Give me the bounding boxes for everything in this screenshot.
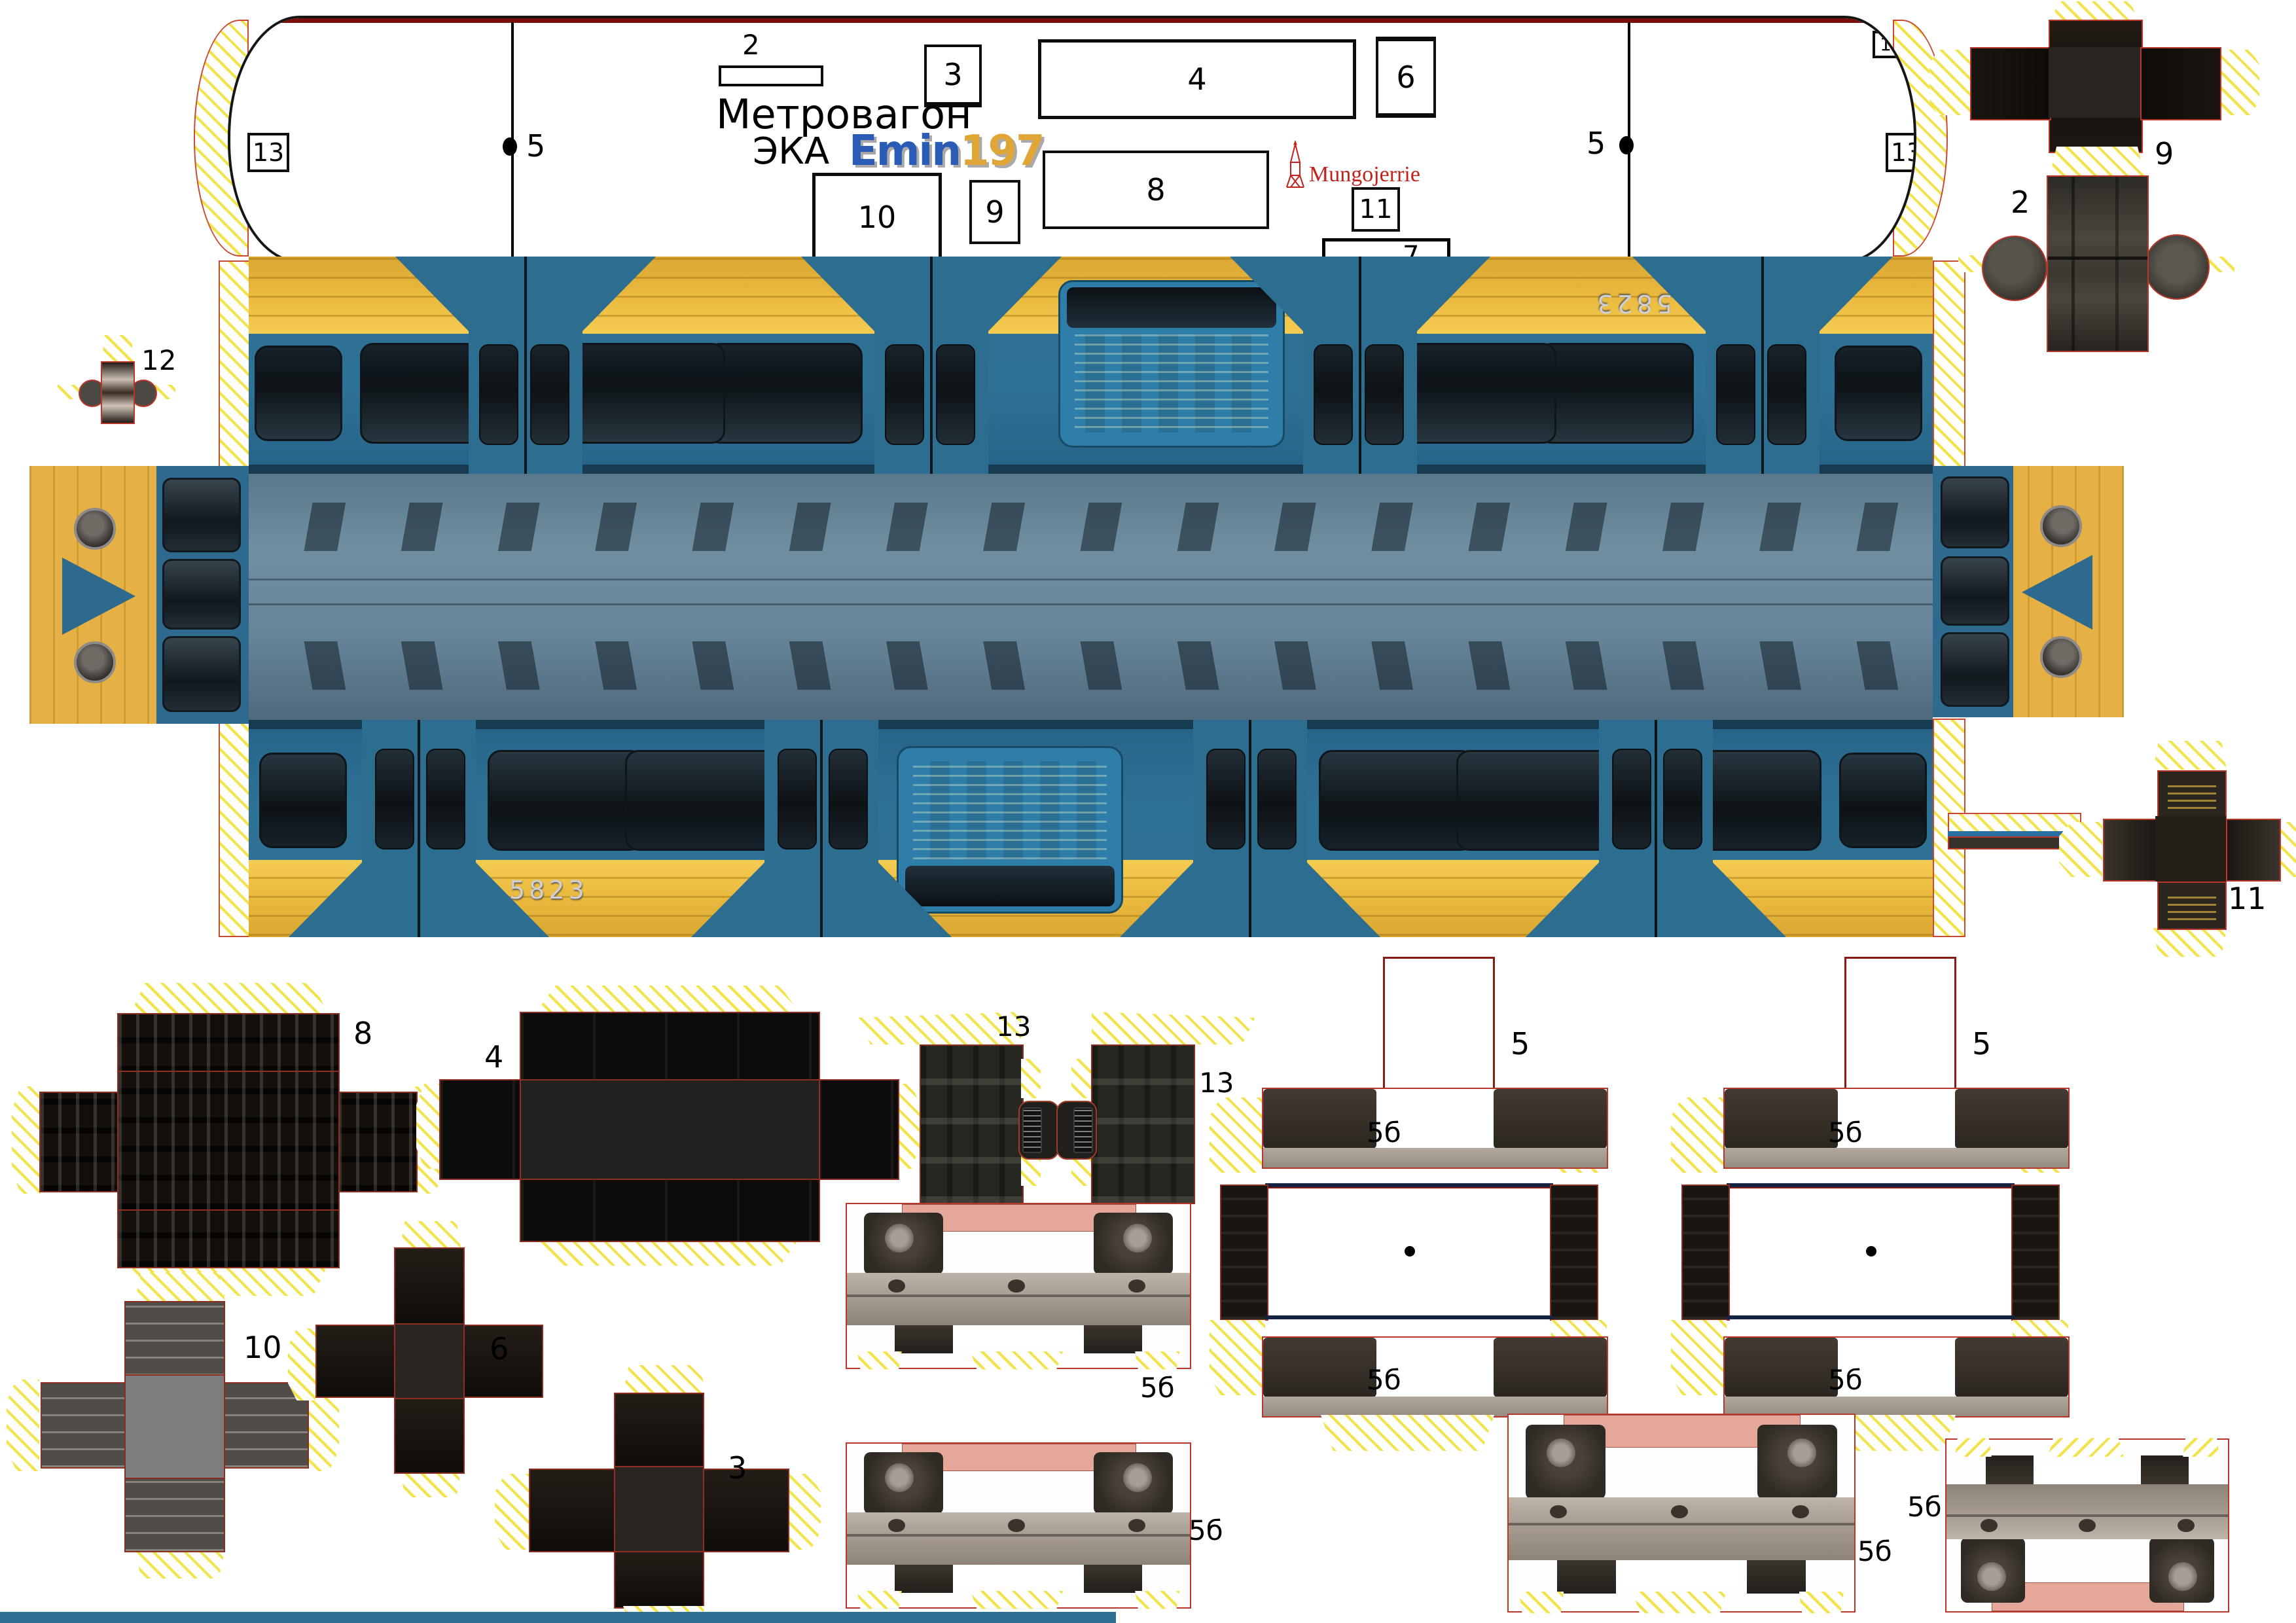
part9-left-flap — [1970, 47, 2051, 120]
part5-glue-tab — [1210, 1320, 1265, 1395]
floor-seam — [249, 603, 1933, 605]
part5-top-tab — [1383, 957, 1495, 1095]
part2-end-disc-right — [2144, 234, 2210, 300]
part4-glue-tab — [897, 1084, 920, 1169]
part3-glue-tab — [787, 1474, 821, 1550]
bogie-beam — [1725, 1148, 2068, 1168]
end-window — [255, 346, 342, 441]
part5-glue-tab — [1210, 1097, 1265, 1173]
part9-right-flap — [2140, 47, 2221, 120]
part-label-5b: 5б — [1189, 1517, 1223, 1544]
door-gap — [418, 720, 420, 937]
headlight — [74, 508, 116, 550]
frame-hole — [888, 1279, 905, 1293]
part11-glue-tab — [2153, 741, 2227, 770]
car-number: 5823 — [1593, 289, 1672, 318]
part-label-5b: 5б — [1857, 1538, 1892, 1565]
part8-bottom-flap — [117, 1208, 340, 1268]
door-window — [530, 344, 569, 445]
roof-piece: 5 5 2 3 4 6 Метровагон ЭКА Emin197 Mungo… — [228, 16, 1916, 263]
sheet-title-line2: ЭКА — [753, 134, 826, 170]
car-body-unfold: 5823 5823 — [249, 257, 1933, 937]
door-window — [1365, 344, 1404, 445]
brake-rod — [1946, 1514, 2228, 1517]
route-map-glass — [905, 866, 1115, 906]
door-gap — [524, 257, 527, 474]
door-window — [1206, 749, 1246, 849]
part5-glue-tab — [1671, 1097, 1727, 1173]
part8-left-flap — [39, 1092, 120, 1192]
part10-center — [124, 1374, 225, 1479]
part4-glue-tab — [537, 1240, 798, 1266]
glue-tab — [1135, 1591, 1179, 1609]
axle-cap — [2168, 1562, 2197, 1591]
side-window — [625, 750, 781, 851]
part7-blue-line — [1948, 831, 2079, 836]
end-window — [259, 753, 347, 848]
logo-text: Emin — [849, 127, 960, 175]
pivot-dot — [1405, 1246, 1415, 1257]
part5-glue-tab — [1321, 1415, 1494, 1451]
part-label-3: 3 — [943, 60, 962, 90]
door — [362, 720, 476, 937]
car-front-face-left — [29, 466, 249, 724]
part5-bogie-strip-bottom — [1262, 1336, 1608, 1418]
cutout-6: 6 — [1376, 37, 1436, 118]
door — [469, 257, 583, 474]
part5-side-panel — [1681, 1185, 1730, 1321]
route-map-glass — [1067, 287, 1276, 328]
part9-glue-tab — [1929, 50, 1970, 115]
part-label-2: 2 — [742, 31, 760, 59]
part-label-5b: 5б — [1367, 1119, 1401, 1147]
part5-side-panel — [1550, 1185, 1598, 1321]
cut-notch — [1616, 1560, 1748, 1586]
part-label-9: 9 — [985, 197, 1004, 227]
lower-spring-cluster — [2141, 1455, 2189, 1485]
part6-glue-tab — [401, 1471, 461, 1497]
bogie-beam — [1263, 1148, 1607, 1168]
part-label-5b: 5б — [1828, 1366, 1863, 1394]
part-label-11: 11 — [1359, 196, 1393, 223]
headlight — [2040, 505, 2082, 547]
body-glue-tab-left-lower — [219, 719, 251, 937]
part3-top-flap — [614, 1393, 704, 1469]
end-window — [1835, 346, 1922, 441]
part4-bottom-flap — [520, 1177, 820, 1242]
part10-bottom-flap — [124, 1476, 225, 1552]
door-gap — [1249, 720, 1251, 937]
part2-glue-tab — [2207, 257, 2234, 272]
door-gap — [820, 720, 823, 937]
part-label-5b: 5б — [1367, 1366, 1401, 1394]
part6-center — [394, 1323, 465, 1399]
door — [764, 720, 878, 937]
door — [1303, 257, 1417, 474]
part5-side-panel — [2011, 1185, 2060, 1321]
part8-glue-tab — [12, 1086, 41, 1194]
part9-glue-tab — [2052, 1, 2137, 21]
part-label-4: 4 — [484, 1042, 503, 1072]
side-window — [488, 750, 643, 851]
side-window — [1401, 343, 1556, 444]
lower-spring-cluster — [895, 1565, 953, 1593]
fold-line — [1727, 1315, 2015, 1319]
vent-row — [249, 641, 1933, 690]
part4-left-flap — [439, 1079, 522, 1180]
part4-glue-tab — [416, 1084, 439, 1169]
part-label-8: 8 — [1146, 175, 1165, 205]
part6-glue-tab — [401, 1221, 461, 1247]
front-window — [162, 478, 241, 552]
end-window — [1839, 753, 1927, 848]
part12-glue-tab — [154, 385, 175, 399]
part-label-10: 10 — [858, 202, 897, 232]
door-gap — [1655, 720, 1657, 937]
part2-glue-tab — [1958, 255, 1984, 272]
part10-glue-tab — [7, 1380, 39, 1471]
bogie-cluster — [1725, 1089, 1838, 1149]
glue-tab — [857, 1591, 902, 1609]
part-label-5: 5 — [1511, 1029, 1530, 1059]
floor-seam — [249, 579, 1933, 580]
door-window — [426, 749, 465, 849]
glue-tab — [2183, 1438, 2219, 1457]
door-window — [829, 749, 868, 849]
route-map-panel — [897, 746, 1123, 914]
part13-glue-tab — [1071, 1059, 1091, 1098]
part-label-5: 5 — [526, 131, 545, 161]
part13-glue-tab — [1021, 1059, 1041, 1098]
part9-center — [2049, 47, 2140, 118]
front-window — [1941, 632, 2009, 707]
door-gap — [930, 257, 933, 474]
mark-box-12: 12 — [1873, 31, 1910, 58]
bogie-sideframe — [846, 1203, 1191, 1369]
axle-cap — [1977, 1562, 2006, 1591]
body-glue-tab-left-upper — [219, 260, 251, 471]
lower-spring-cluster — [1084, 1565, 1142, 1593]
part-label-5: 5 — [1972, 1029, 1991, 1059]
mark-box-13-right: 13 — [1886, 133, 1916, 172]
part2-pipe — [2072, 177, 2075, 351]
side-window — [707, 343, 863, 444]
door-gap — [1359, 257, 1361, 474]
axle-cap — [1787, 1438, 1816, 1467]
car-floor-strip — [249, 474, 1933, 720]
door-window — [479, 344, 518, 445]
part6-top-flap — [394, 1247, 465, 1326]
cutout-11: 11 — [1352, 187, 1400, 232]
frame-hole — [1792, 1505, 1809, 1518]
brake-rod — [1509, 1523, 1854, 1525]
pivot-dot — [1866, 1246, 1876, 1257]
bogie-sideframe — [846, 1442, 1191, 1609]
glue-tab — [1955, 1438, 1992, 1457]
part3-center — [614, 1466, 704, 1552]
headlight — [2040, 636, 2082, 678]
cut-notch — [953, 1325, 1083, 1347]
part2-seam — [2048, 257, 2147, 260]
part5-left: 5 5б 5б — [1210, 957, 1605, 1421]
glue-tab — [971, 1591, 1063, 1609]
part8-center — [117, 1071, 340, 1211]
part-label-2: 2 — [2011, 187, 2030, 217]
part3-bottom-flap — [614, 1550, 704, 1609]
frame-hole — [888, 1519, 905, 1532]
part11-top-flap — [2157, 770, 2227, 819]
glue-tab — [971, 1351, 1063, 1370]
door-window — [375, 749, 414, 849]
part3-glue-tab — [623, 1365, 706, 1393]
part-label-10: 10 — [243, 1332, 282, 1363]
lower-spring-cluster — [895, 1325, 953, 1353]
door-window — [1716, 344, 1755, 445]
part-label-6: 6 — [1396, 62, 1415, 92]
lower-spring-cluster — [1986, 1455, 2034, 1485]
cutout-10: 10 — [812, 173, 942, 262]
frame-hole — [1128, 1519, 1145, 1532]
part13-left-strip — [920, 1044, 1024, 1204]
part4-top-flap — [520, 1012, 820, 1082]
glue-tab — [1519, 1592, 1564, 1613]
bogie-cluster — [1725, 1338, 1838, 1397]
part-label-12: 12 — [1880, 35, 1903, 54]
part2-body — [2047, 175, 2149, 352]
part8-top-flap — [117, 1013, 340, 1073]
bogie-sideframe — [1507, 1414, 1856, 1613]
part12-glue-tab — [58, 385, 79, 399]
frame-hole — [1671, 1505, 1688, 1518]
part4-glue-tab — [537, 986, 798, 1012]
part11-center — [2155, 816, 2226, 882]
body-glue-tab-right-upper — [1933, 260, 1965, 471]
glue-tab — [1135, 1351, 1179, 1370]
part-label-6: 6 — [490, 1334, 509, 1364]
axle-cap — [1547, 1438, 1575, 1467]
door-window — [936, 344, 975, 445]
front-window — [162, 636, 241, 712]
route-map-text — [913, 761, 1107, 859]
bogie-cluster — [1494, 1089, 1607, 1149]
lower-spring-cluster — [1747, 1560, 1806, 1594]
part-label-5b: 5б — [1828, 1119, 1863, 1147]
part-label-3: 3 — [728, 1453, 747, 1483]
door-gap — [1761, 257, 1764, 474]
cutout-4: 4 — [1038, 39, 1356, 119]
cut-notch — [953, 1565, 1083, 1586]
front-window — [1941, 476, 2009, 548]
part-label-13: 13 — [996, 1013, 1031, 1041]
door-window — [1612, 749, 1651, 849]
part-label-13: 13 — [1891, 140, 1916, 165]
coupler-connector-right — [1073, 1107, 1093, 1153]
headlight — [74, 641, 116, 683]
axle-cap — [885, 1224, 914, 1253]
side-window — [1456, 750, 1612, 851]
door — [1193, 720, 1307, 937]
part6-left-flap — [315, 1325, 397, 1398]
cutout-slot-2 — [719, 65, 823, 86]
coupler-connector-left — [1022, 1107, 1042, 1153]
side-window — [1538, 343, 1694, 444]
part5-bogie-strip-top — [1723, 1088, 2070, 1169]
part2-end-disc-left — [1982, 236, 2047, 301]
part12-body — [101, 361, 135, 424]
lower-spring-cluster — [1557, 1560, 1616, 1594]
part4-right-flap — [817, 1079, 899, 1180]
glue-tab — [1799, 1592, 1844, 1613]
car-front-face-right — [1933, 466, 2124, 717]
part-label-5b: 5б — [1907, 1493, 1942, 1521]
warning-plate — [2168, 891, 2215, 921]
door-window — [778, 749, 817, 849]
car-number: 5823 — [509, 876, 588, 904]
front-window — [1941, 556, 2009, 626]
credit-text: Mungojerrie — [1309, 164, 1420, 186]
part13-right-strip — [1091, 1044, 1195, 1204]
bogie-cluster — [1494, 1338, 1607, 1397]
door-window — [1663, 749, 1702, 849]
part9-glue-tab — [2219, 50, 2259, 115]
door-window — [885, 344, 924, 445]
part8-right-flap — [337, 1092, 418, 1192]
car-side-view-top: 5823 — [249, 257, 1933, 474]
part-label-5b: 5б — [1140, 1374, 1175, 1402]
kremlin-tower-icon — [1284, 140, 1306, 188]
door — [874, 257, 988, 474]
fold-line — [1265, 1315, 1553, 1319]
part2-pipe — [2115, 177, 2119, 351]
part10-glue-tab — [135, 1272, 225, 1301]
glue-tab — [2048, 1438, 2124, 1457]
side-window — [569, 343, 725, 444]
part12-glue-tab — [102, 335, 134, 361]
door-window — [1767, 344, 1806, 445]
brake-rod — [847, 1534, 1190, 1537]
door-window — [1314, 344, 1353, 445]
glue-tab — [1633, 1592, 1727, 1613]
cut-notch — [2034, 1462, 2140, 1484]
part8-glue-tab — [131, 983, 327, 1013]
part6-bottom-flap — [394, 1395, 465, 1474]
part10-top-flap — [124, 1301, 225, 1377]
cutout-8: 8 — [1043, 151, 1269, 229]
part-label-13: 13 — [253, 140, 284, 165]
front-window — [162, 559, 241, 630]
warning-plate — [2168, 780, 2215, 810]
route-map-text — [1075, 334, 1268, 433]
part5-bogie-strip-top — [1262, 1088, 1608, 1169]
part5-right: 5 5б 5б — [1671, 957, 2067, 1421]
part11-bottom-flap — [2157, 882, 2227, 930]
part4-center — [520, 1079, 820, 1180]
car-side-view-bottom: 5823 — [249, 720, 1933, 937]
route-map-panel — [1058, 280, 1285, 448]
mark-dot-5-right — [1619, 136, 1634, 154]
part10-glue-tab — [135, 1550, 225, 1578]
part-label-5: 5 — [1587, 128, 1605, 158]
roof-top-cut-line — [270, 18, 1873, 23]
side-window — [1319, 750, 1475, 851]
part5-glue-tab — [1671, 1320, 1727, 1395]
part6-glue-tab — [288, 1329, 315, 1400]
part5-top-tab — [1844, 957, 1956, 1095]
part-label-4: 4 — [1187, 64, 1206, 94]
glue-tab — [857, 1351, 902, 1370]
cutout-9: 9 — [969, 180, 1020, 244]
part-label-12: 12 — [141, 347, 176, 374]
door-window — [1257, 749, 1297, 849]
part3-left-flap — [529, 1469, 617, 1552]
part5-side-panel — [1220, 1185, 1268, 1321]
part-label-8: 8 — [353, 1018, 372, 1048]
part11-left-flap — [2103, 819, 2158, 882]
bogie-cluster — [1263, 1338, 1376, 1397]
part5-bogie-strip-bottom — [1723, 1336, 2070, 1418]
part11-glue-tab — [2059, 822, 2102, 877]
bogie-sideframe — [1945, 1438, 2229, 1613]
cropped-piece-edge — [0, 1612, 1116, 1623]
mark-dot-5-left — [503, 137, 517, 156]
frame-hole — [1128, 1279, 1145, 1293]
part2-glue-tab — [2050, 147, 2144, 175]
part11-right-flap — [2226, 819, 2281, 882]
brake-rod — [847, 1294, 1190, 1297]
door — [1599, 720, 1713, 937]
bogie-cluster — [1955, 1338, 2068, 1397]
door — [1706, 257, 1820, 474]
mark-box-13-left: 13 — [247, 133, 289, 172]
part10-left-flap — [41, 1382, 127, 1469]
part3-glue-tab — [495, 1474, 529, 1550]
lower-spring-cluster — [1084, 1325, 1142, 1353]
part-label-11: 11 — [2228, 883, 2267, 914]
bogie-cluster — [1263, 1089, 1376, 1149]
part-label-9: 9 — [2155, 139, 2174, 169]
papercraft-sheet: 5 5 2 3 4 6 Метровагон ЭКА Emin197 Mungo… — [0, 0, 2296, 1623]
vent-row — [249, 503, 1933, 551]
part11-glue-tab — [2153, 928, 2227, 957]
axle-cap — [885, 1463, 914, 1492]
logo-number: 197 — [960, 127, 1044, 175]
bogie-cluster — [1955, 1089, 2068, 1149]
